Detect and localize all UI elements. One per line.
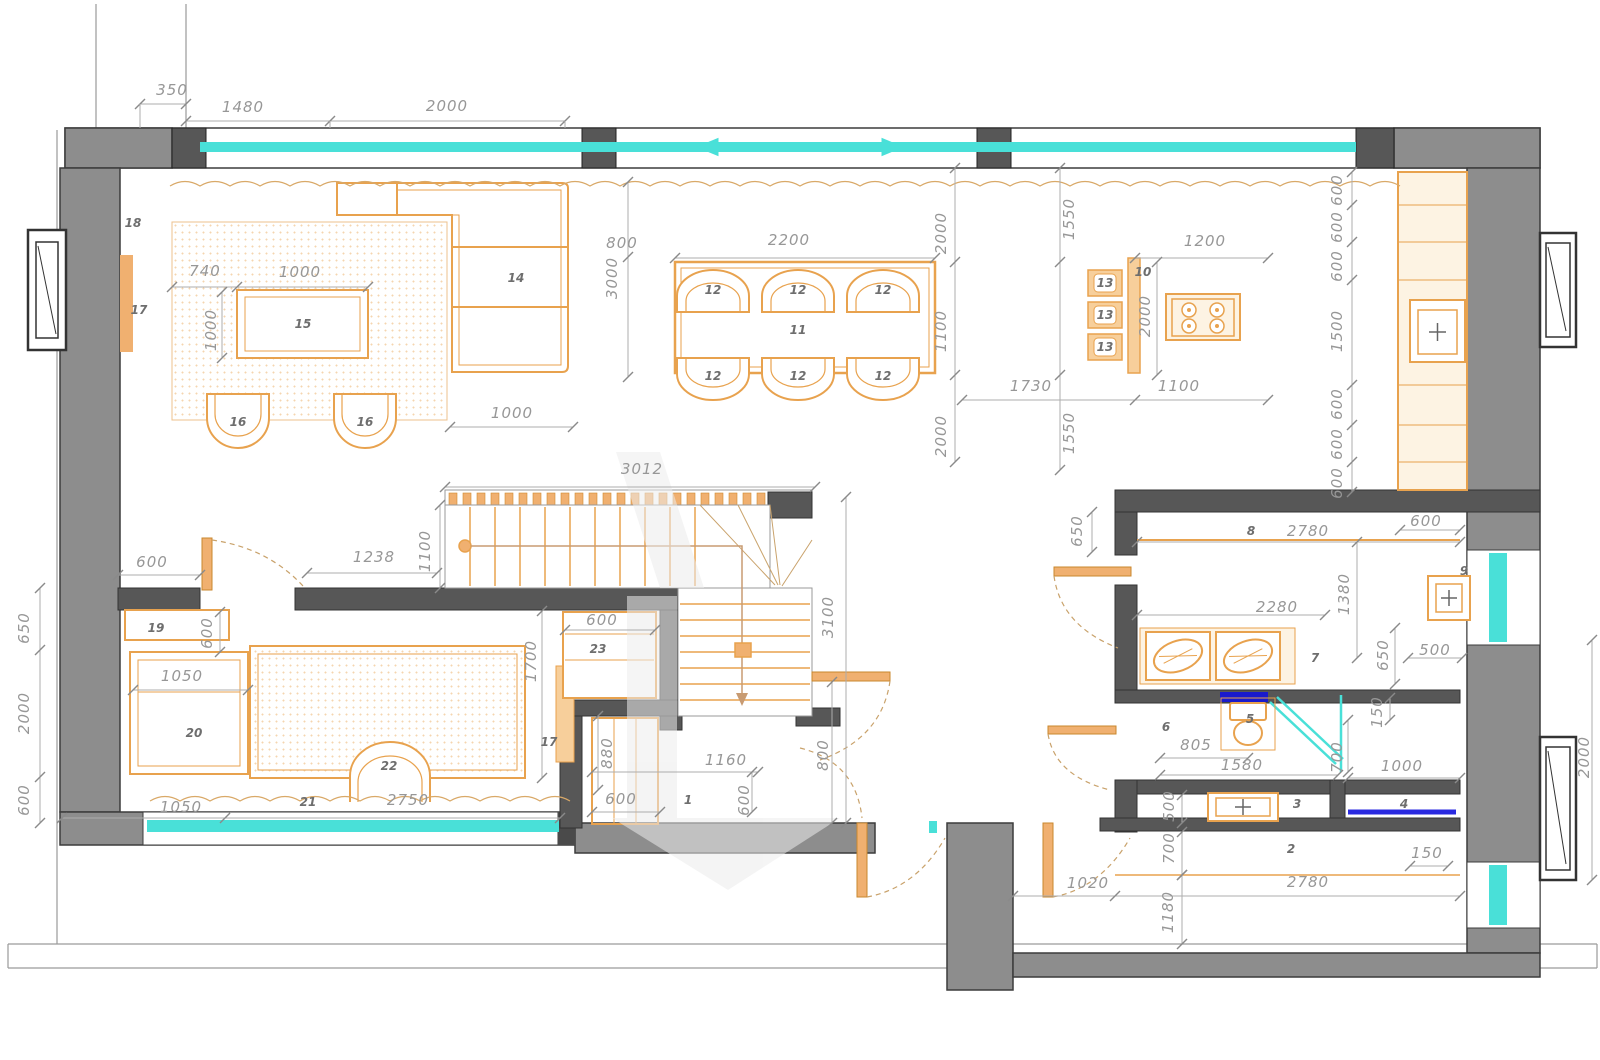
burner-dot <box>1187 308 1191 312</box>
hatch-dash <box>757 493 765 505</box>
dresser-20 <box>130 652 248 774</box>
hatch-dash <box>519 493 527 505</box>
wardrobe-door-leaf <box>1054 567 1131 576</box>
burner-dot <box>1215 308 1219 312</box>
bathtub-edge <box>1220 692 1268 702</box>
radiator <box>120 255 133 352</box>
hatch-dash <box>687 493 695 505</box>
chair-22 <box>350 742 430 802</box>
hatch-dash <box>463 493 471 505</box>
bath-door-leaf <box>1048 726 1116 734</box>
toilet-tank <box>1230 703 1266 720</box>
hatch-dash <box>575 493 583 505</box>
hatch-dash <box>603 493 611 505</box>
hatch-dash <box>729 493 737 505</box>
plan-drawing <box>0 0 1600 1060</box>
dining-chair <box>847 358 919 400</box>
hatch-dash <box>547 493 555 505</box>
bar-stool-seat <box>1094 306 1116 324</box>
kitchen-island <box>1166 294 1240 340</box>
hatch-dash <box>505 493 513 505</box>
dining-chair <box>762 358 834 400</box>
interior-walls <box>118 490 1540 832</box>
hatch-dash <box>533 493 541 505</box>
bar-stool-seat <box>1094 338 1116 356</box>
burner-dot <box>1187 324 1191 328</box>
hatch-dash <box>715 493 723 505</box>
hall-door-leaf <box>812 672 890 681</box>
hatch-dash <box>561 493 569 505</box>
hatch-dash <box>477 493 485 505</box>
hatch-dash <box>449 493 457 505</box>
hatch-dash <box>617 493 625 505</box>
dining-chair <box>847 270 919 312</box>
toilet-bowl <box>1234 721 1262 745</box>
dining-chair <box>762 270 834 312</box>
closet-19 <box>125 610 229 640</box>
sofa-side-table <box>337 183 397 215</box>
floor-plan: 3501480200074010001000800300010002200200… <box>0 0 1600 1060</box>
hatch-dash <box>491 493 499 505</box>
bar-stool-seat <box>1094 274 1116 292</box>
shower-glass-partition <box>1270 695 1343 772</box>
hatch-dash <box>589 493 597 505</box>
burner-dot <box>1215 324 1219 328</box>
coffee-table <box>237 290 368 358</box>
bedroom-door-leaf <box>202 538 212 590</box>
dining-chair <box>677 358 749 400</box>
dresser-inner <box>138 660 240 766</box>
hatch-dash <box>743 493 751 505</box>
hatch-dash <box>701 493 709 505</box>
bar-counter <box>1128 258 1140 373</box>
dining-chair <box>677 270 749 312</box>
terrace-door-leaf <box>1043 823 1053 897</box>
entrance-door-leaf <box>857 823 867 897</box>
